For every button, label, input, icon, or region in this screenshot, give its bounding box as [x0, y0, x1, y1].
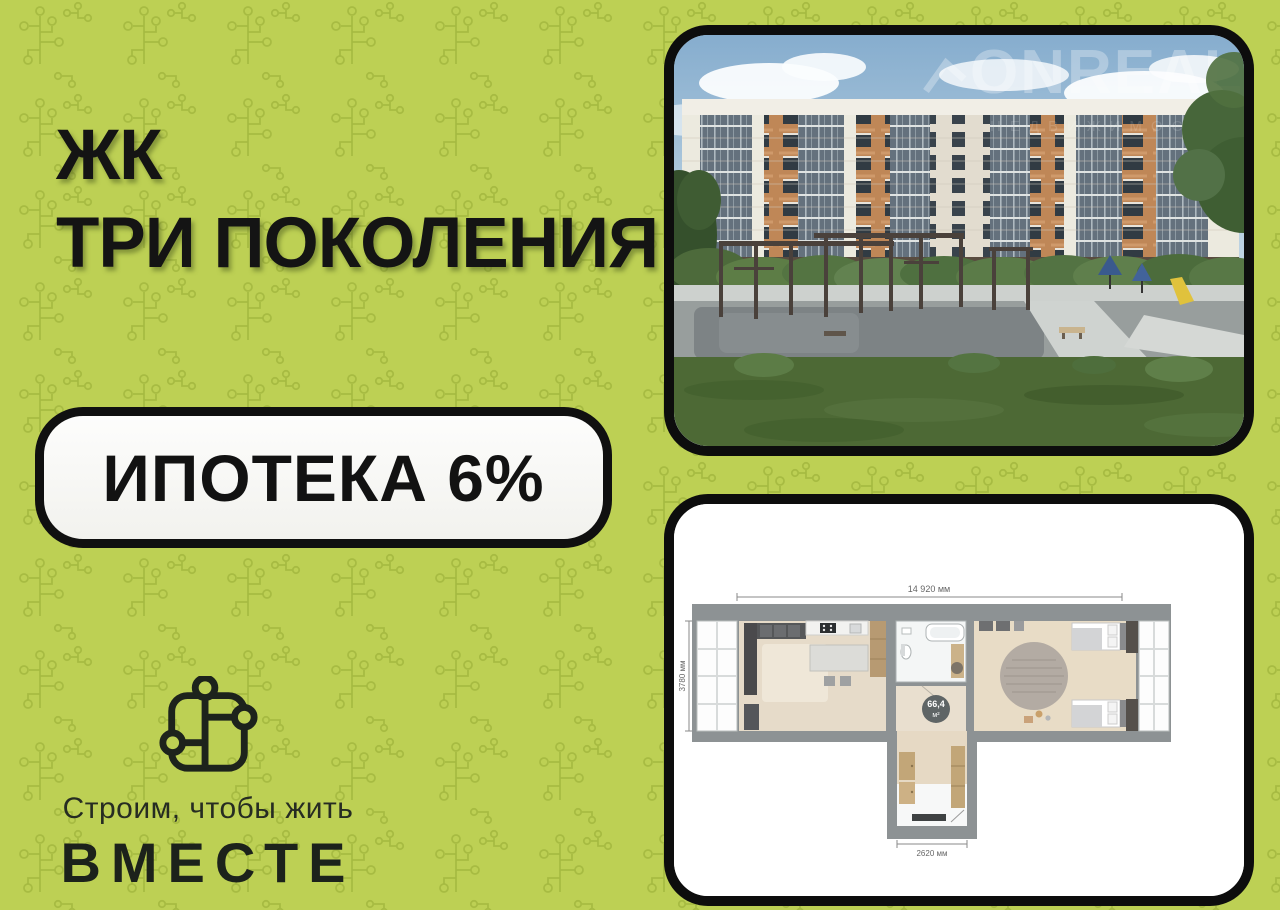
brand-block: Строим, чтобы жить ВМЕСТЕ: [30, 676, 386, 895]
mortgage-badge: ИПОТЕКА 6%: [35, 407, 612, 548]
complex-title: ЖК ТРИ ПОКОЛЕНИЯ: [56, 112, 658, 288]
dim-bottom-label: 2620 мм: [916, 849, 947, 858]
brand-name: ВМЕСТЕ: [30, 830, 386, 895]
area-value-label: 66,4: [927, 699, 945, 709]
brand-logo-icon: [154, 676, 262, 780]
floorplan-frame: 14 920 мм 3780 мм: [664, 494, 1254, 906]
flyer-canvas: ЖК ТРИ ПОКОЛЕНИЯ ИПОТЕКА 6% Строим, чтоб…: [0, 0, 1280, 910]
building-photo-frame: ONREAL НЕДВИЖИМОСТЬ: [664, 25, 1254, 456]
dim-left-label: 3780 мм: [678, 660, 687, 691]
title-line-zhk: ЖК: [56, 112, 658, 200]
floorplan-illustration: 14 920 мм 3780 мм: [674, 504, 1244, 896]
brand-tagline: Строим, чтобы жить: [30, 792, 386, 826]
dim-top-label: 14 920 мм: [908, 584, 950, 594]
building-photo-illustration: ONREAL НЕДВИЖИМОСТЬ: [674, 35, 1244, 446]
title-line-name: ТРИ ПОКОЛЕНИЯ: [56, 200, 658, 288]
area-unit-label: м²: [932, 712, 940, 719]
mortgage-badge-label: ИПОТЕКА 6%: [102, 440, 544, 516]
